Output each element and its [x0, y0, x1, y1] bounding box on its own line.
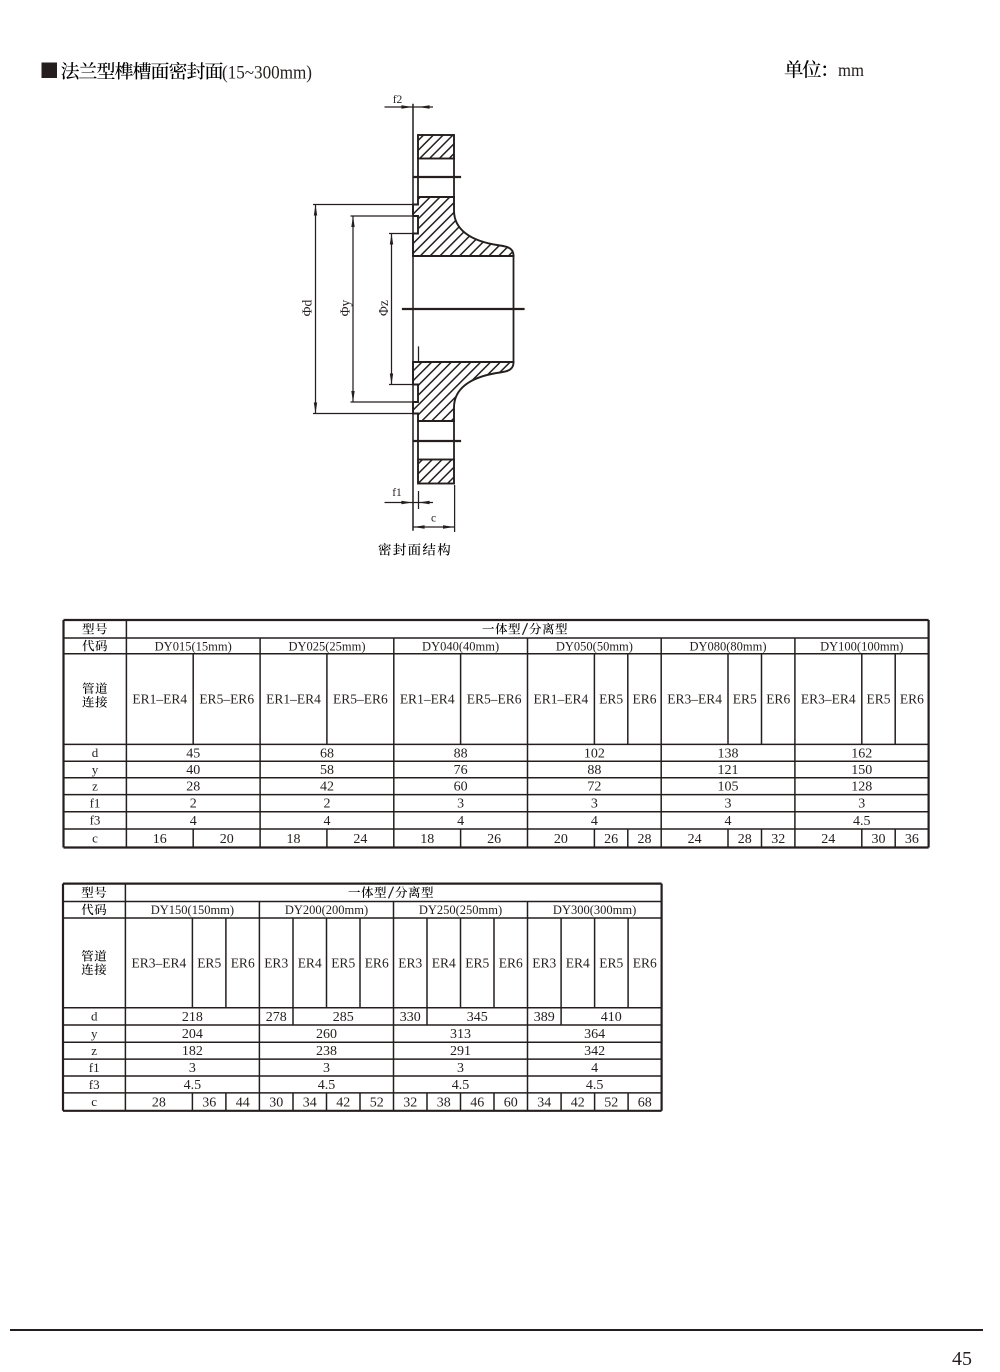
- svg-text:285: 285: [333, 1010, 354, 1025]
- svg-text:36: 36: [202, 1095, 216, 1110]
- svg-text:30: 30: [269, 1095, 283, 1110]
- svg-text:3: 3: [457, 797, 464, 812]
- svg-text:3: 3: [189, 1061, 196, 1076]
- svg-text:16: 16: [153, 832, 167, 847]
- svg-text:ER6: ER6: [900, 692, 924, 707]
- svg-text:4.5: 4.5: [586, 1078, 604, 1093]
- svg-text:26: 26: [604, 832, 618, 847]
- svg-text:ER1–ER4: ER1–ER4: [534, 692, 589, 707]
- svg-text:c: c: [91, 1094, 97, 1109]
- svg-text:182: 182: [182, 1044, 203, 1059]
- svg-text:ER5: ER5: [599, 692, 623, 707]
- svg-text:DY100(100mm): DY100(100mm): [820, 639, 903, 653]
- svg-text:121: 121: [718, 763, 739, 778]
- svg-text:ER4: ER4: [432, 955, 456, 970]
- svg-text:278: 278: [266, 1010, 287, 1025]
- svg-text:4: 4: [190, 814, 197, 829]
- svg-text:42: 42: [571, 1095, 585, 1110]
- svg-text:d: d: [91, 1009, 98, 1024]
- svg-text:DY250(250mm): DY250(250mm): [419, 903, 502, 917]
- svg-text:68: 68: [320, 746, 334, 761]
- svg-text:238: 238: [316, 1044, 337, 1059]
- svg-text:342: 342: [584, 1044, 605, 1059]
- svg-text:4.5: 4.5: [184, 1078, 202, 1093]
- svg-text:ER5: ER5: [599, 955, 623, 970]
- svg-text:f1: f1: [89, 1060, 100, 1075]
- svg-text:4: 4: [457, 814, 464, 829]
- svg-text:d: d: [92, 745, 99, 760]
- svg-text:4.5: 4.5: [853, 814, 871, 829]
- svg-text:138: 138: [718, 746, 739, 761]
- svg-text:18: 18: [420, 832, 434, 847]
- svg-text:52: 52: [370, 1095, 384, 1110]
- svg-text:88: 88: [454, 746, 468, 761]
- svg-text:204: 204: [182, 1027, 203, 1042]
- svg-text:24: 24: [353, 832, 367, 847]
- svg-text:42: 42: [320, 780, 334, 795]
- svg-text:ER5: ER5: [465, 955, 489, 970]
- svg-text:ER5–ER6: ER5–ER6: [467, 692, 522, 707]
- svg-text:ER3–ER4: ER3–ER4: [801, 692, 856, 707]
- svg-text:ER4: ER4: [566, 955, 590, 970]
- svg-text:ER3: ER3: [398, 955, 422, 970]
- svg-text:345: 345: [467, 1010, 488, 1025]
- svg-text:24: 24: [688, 832, 702, 847]
- svg-text:410: 410: [601, 1010, 622, 1025]
- svg-text:ER5: ER5: [866, 692, 890, 707]
- svg-text:162: 162: [851, 746, 872, 761]
- svg-text:28: 28: [738, 832, 752, 847]
- svg-text:60: 60: [504, 1095, 518, 1110]
- svg-text:76: 76: [454, 763, 468, 778]
- svg-text:z: z: [91, 1043, 97, 1058]
- svg-text:260: 260: [316, 1027, 337, 1042]
- svg-text:c: c: [431, 513, 436, 525]
- svg-text:ER6: ER6: [632, 692, 656, 707]
- svg-text:ER5–ER6: ER5–ER6: [333, 692, 388, 707]
- svg-text:24: 24: [821, 832, 835, 847]
- svg-text:102: 102: [584, 746, 605, 761]
- svg-text:Φd: Φd: [300, 299, 315, 316]
- svg-text:f1: f1: [90, 796, 101, 811]
- svg-text:4: 4: [591, 814, 598, 829]
- svg-text:f1: f1: [392, 487, 402, 499]
- svg-text:105: 105: [718, 780, 739, 795]
- svg-text:364: 364: [584, 1027, 605, 1042]
- svg-text:20: 20: [554, 832, 568, 847]
- svg-text:128: 128: [851, 780, 872, 795]
- svg-text:4.5: 4.5: [452, 1078, 470, 1093]
- svg-text:389: 389: [534, 1010, 555, 1025]
- svg-text:DY025(25mm): DY025(25mm): [288, 639, 365, 653]
- svg-text:2: 2: [324, 797, 331, 812]
- svg-text:40: 40: [186, 763, 200, 778]
- svg-text:32: 32: [403, 1095, 417, 1110]
- svg-text:30: 30: [872, 832, 886, 847]
- svg-text:52: 52: [604, 1095, 618, 1110]
- svg-text:ER6: ER6: [365, 955, 389, 970]
- svg-text:44: 44: [236, 1095, 250, 1110]
- svg-text:y: y: [92, 762, 99, 777]
- svg-text:DY040(40mm): DY040(40mm): [422, 639, 499, 653]
- svg-text:34: 34: [303, 1095, 317, 1110]
- svg-text:ER6: ER6: [231, 955, 255, 970]
- svg-text:ER4: ER4: [298, 955, 322, 970]
- svg-text:313: 313: [450, 1027, 471, 1042]
- svg-text:ER1–ER4: ER1–ER4: [400, 692, 455, 707]
- svg-text:72: 72: [587, 780, 601, 795]
- svg-text:3: 3: [858, 797, 865, 812]
- svg-text:32: 32: [771, 832, 785, 847]
- svg-text:DY300(300mm): DY300(300mm): [553, 903, 636, 917]
- svg-text:150: 150: [851, 763, 872, 778]
- svg-text:36: 36: [905, 832, 919, 847]
- svg-text:4: 4: [591, 1061, 598, 1076]
- svg-text:DY050(50mm): DY050(50mm): [556, 639, 633, 653]
- svg-text:ER5: ER5: [331, 955, 355, 970]
- svg-text:28: 28: [152, 1095, 166, 1110]
- svg-text:45: 45: [952, 1348, 972, 1370]
- svg-text:3: 3: [323, 1061, 330, 1076]
- svg-text:3: 3: [725, 797, 732, 812]
- svg-text:28: 28: [638, 832, 652, 847]
- svg-text:3: 3: [591, 797, 598, 812]
- svg-text:ER1–ER4: ER1–ER4: [132, 692, 187, 707]
- svg-text:18: 18: [287, 832, 301, 847]
- svg-text:291: 291: [450, 1044, 471, 1059]
- svg-text:ER6: ER6: [766, 692, 790, 707]
- svg-text:4: 4: [324, 814, 331, 829]
- svg-text:DY080(80mm): DY080(80mm): [689, 639, 766, 653]
- svg-text:y: y: [91, 1026, 98, 1041]
- svg-text:2: 2: [190, 797, 197, 812]
- svg-text:330: 330: [400, 1010, 421, 1025]
- svg-text:f2: f2: [393, 94, 403, 106]
- svg-text:ER3–ER4: ER3–ER4: [667, 692, 722, 707]
- svg-text:ER5: ER5: [197, 955, 221, 970]
- svg-text:DY015(15mm): DY015(15mm): [155, 639, 232, 653]
- svg-text:ER1–ER4: ER1–ER4: [266, 692, 321, 707]
- svg-text:ER5–ER6: ER5–ER6: [199, 692, 254, 707]
- svg-text:DY150(150mm): DY150(150mm): [151, 903, 234, 917]
- svg-text:DY200(200mm): DY200(200mm): [285, 903, 368, 917]
- svg-text:Φy: Φy: [338, 299, 353, 316]
- svg-text:34: 34: [537, 1095, 551, 1110]
- svg-text:(15~300mm): (15~300mm): [222, 63, 312, 84]
- svg-text:ER3–ER4: ER3–ER4: [132, 955, 187, 970]
- svg-text:58: 58: [320, 763, 334, 778]
- svg-text:42: 42: [336, 1095, 350, 1110]
- svg-text:4: 4: [725, 814, 732, 829]
- svg-text:4.5: 4.5: [318, 1078, 336, 1093]
- svg-text:45: 45: [186, 746, 200, 761]
- svg-text:ER3: ER3: [532, 955, 556, 970]
- svg-text:ER6: ER6: [633, 955, 657, 970]
- svg-text:38: 38: [437, 1095, 451, 1110]
- svg-text:218: 218: [182, 1010, 203, 1025]
- svg-text:20: 20: [220, 832, 234, 847]
- svg-text:c: c: [92, 831, 98, 846]
- svg-text:f3: f3: [90, 813, 101, 828]
- svg-text:ER5: ER5: [733, 692, 757, 707]
- svg-text:3: 3: [457, 1061, 464, 1076]
- svg-text:28: 28: [186, 780, 200, 795]
- svg-text:26: 26: [487, 832, 501, 847]
- svg-text:f3: f3: [89, 1077, 100, 1092]
- svg-text:Φz: Φz: [376, 300, 391, 316]
- svg-text:68: 68: [638, 1095, 652, 1110]
- svg-text:mm: mm: [838, 60, 864, 80]
- svg-text:ER6: ER6: [499, 955, 523, 970]
- svg-text:z: z: [92, 779, 98, 794]
- svg-text:46: 46: [470, 1095, 484, 1110]
- svg-text:88: 88: [587, 763, 601, 778]
- svg-text:ER3: ER3: [264, 955, 288, 970]
- svg-text:60: 60: [454, 780, 468, 795]
